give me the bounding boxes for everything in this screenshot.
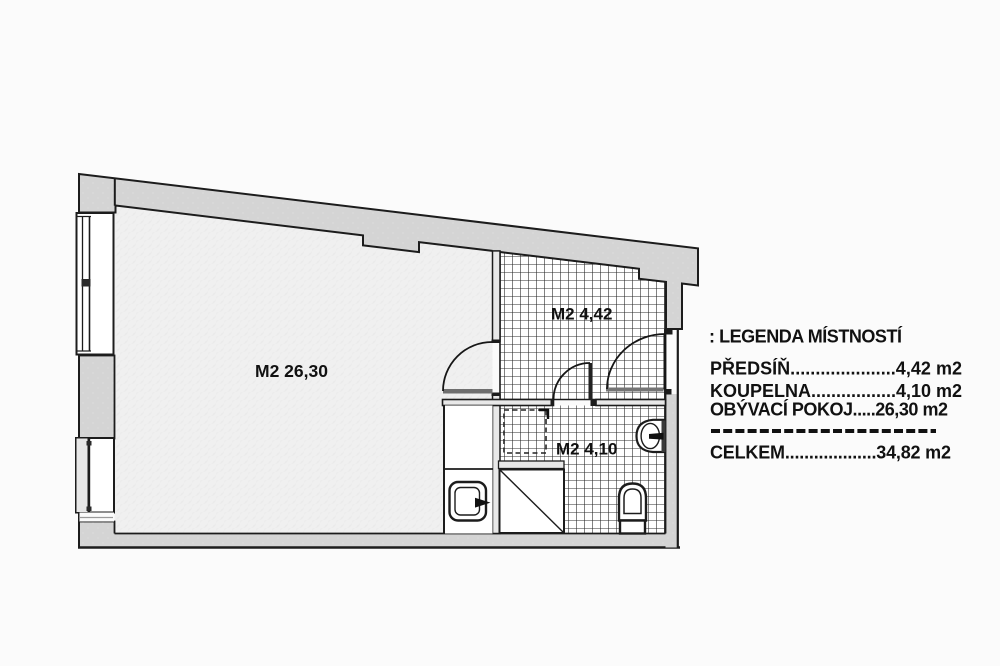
svg-text:M2 26,30: M2 26,30: [255, 361, 328, 381]
svg-text:M2 4,42: M2 4,42: [551, 305, 612, 324]
svg-text:: LEGENDA MÍSTNOSTÍ: : LEGENDA MÍSTNOSTÍ: [709, 326, 903, 347]
svg-text:OBÝVACÍ POKOJ.....26,30 m2: OBÝVACÍ POKOJ.....26,30 m2: [710, 399, 948, 420]
svg-text:PŘEDSÍŇ.....................4,: PŘEDSÍŇ.....................4,42 m2: [710, 358, 962, 379]
svg-text:CELKEM...................34,82: CELKEM...................34,82 m2: [710, 443, 951, 463]
svg-text:M2 4,10: M2 4,10: [556, 440, 617, 459]
svg-text:KOUPELNA.................4,10: KOUPELNA.................4,10 m2: [710, 381, 962, 401]
